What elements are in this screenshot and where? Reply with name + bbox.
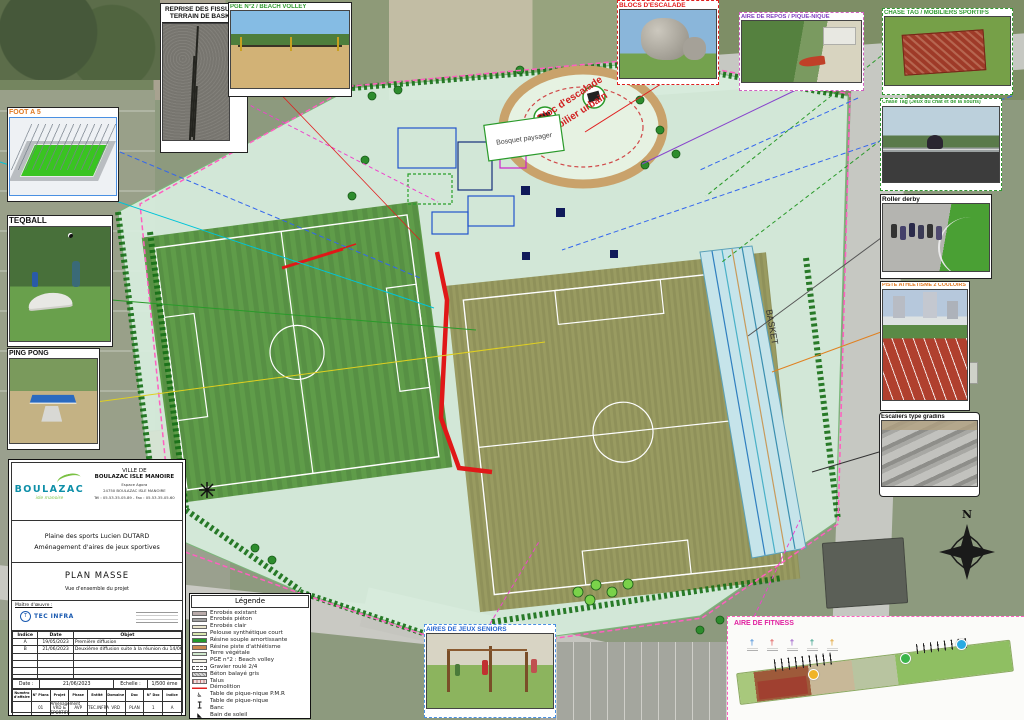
figure-icon: † [790,639,794,647]
legend-swatch-swatch [192,638,207,643]
inset-blocs-escalade: BLOCS D'ESCALADE [617,0,719,85]
logo-text: BOULAZAC [15,484,85,495]
inset-chase-tag-aerial: CHASE TAG / MOBILIERS SPORTIFS [882,8,1013,95]
ball-graphic [68,233,73,238]
revision-row-empty [13,667,182,674]
meta-header: Phase [69,690,88,702]
wood-post-graphic [447,650,450,692]
inset-roller-derby: Roller derby [880,194,992,279]
city-address: Tél : 05.53.35.05.89 - Fax : 05.53.35.05… [87,495,182,500]
scale-label: Echelle : [113,680,147,689]
athletics-track-band [700,246,806,558]
fitness-pictograms: † † † † † [746,639,838,651]
inset-aire-fitness: AIRE DE FITNESS † † † † † [727,616,1024,720]
doc-subtitle: Vue d'ensemble du projet [12,586,182,592]
table-top-graphic [29,395,75,404]
meta-header: Entité [88,690,107,702]
tower-graphic [923,292,937,318]
photo-beach-volley [230,10,350,89]
doc-title: PLAN MASSE [12,571,182,581]
scale-value: 1/500 ème [147,680,181,689]
person-graphic [32,272,38,287]
revision-row-empty [13,660,182,667]
inset-piste-athletisme: PISTE ATHLETISME 2 COULOIRS [880,281,970,411]
photo-chase-tag-aerial [884,16,1011,86]
document-title: PLAN MASSE Vue d'ensemble du projet [12,563,182,601]
table-leg-graphic [41,406,62,422]
wood-bar-graphic [447,649,527,651]
legend-swatch-swatch [192,618,207,623]
pictogram: † [826,639,838,651]
legend-label: PGE n°2 : Beach volley [210,658,274,664]
photo-chase-tag [882,106,1000,183]
legend-swatch-icon: ┳ [192,700,207,705]
legend-swatch-swatch [192,632,207,637]
inset-foot-a5: FOOT A 5 [7,107,119,202]
logo-subtext: isle manoire [12,496,87,501]
aerial-forest [0,0,160,80]
plan-masse-sheet: Bloc d'escalade Mobilier urbain Bosquet … [0,0,1024,720]
city-name: BOULAZAC ISLE MANOIRE [87,474,182,480]
aerial-sports-hall [822,537,908,609]
pictogram-caption [747,648,758,651]
meta-header: Indice [163,690,182,702]
zone-badge-green [900,653,911,664]
legend-swatch-line [192,686,207,691]
photo-teqball [9,226,111,342]
legend-swatch-swatch [192,645,207,650]
project-line: Aménagement d'aires de jeux sportives [12,544,182,551]
teqball-table-graphic [27,290,72,308]
revision-row: B21/06/2023Deuxième diffusion suite à la… [13,646,182,653]
meta-grid: Numéro d'affaireN° PlansProjetPhaseEntit… [12,689,182,715]
zone-badge-yellow [808,669,819,680]
legend-label: Démolition [210,685,240,691]
pictogram-caption [807,648,818,651]
inset-chase-tag-photo: Chase Tag (Jeux du chat et de la souris) [880,98,1002,191]
rail-graphic [883,149,999,151]
post-graphic [290,37,292,51]
revision-header: Indice [13,632,38,639]
legend-swatch-swatch [192,652,207,657]
inset-teqball: TEQBALL [7,215,113,347]
project-title: Plaine des sports Lucien DUTARD Aménagem… [12,521,182,563]
meta-value: PLAN [125,702,144,716]
revision-table: IndiceDateObjetA19/05/2023Première diffu… [12,631,182,679]
inset-ping-pong: PING PONG [7,348,100,450]
pictogram: † [746,639,758,651]
inset-beach-volley: PGE N°2 / BEACH VOLLEY [228,2,352,97]
legend-swatch-swatch [192,611,207,616]
wood-post-graphic [489,646,492,692]
legend-item: Béton balayé gris [192,671,308,678]
legend-label: Table de pique-nique [210,699,268,705]
equipment-posts-graphic [774,652,835,671]
legend: Légende Enrobés existantEnrobés piétonEn… [189,593,311,719]
wood-post-graphic [525,652,528,692]
legend-label: Terre végétale [210,651,250,657]
bosquet-label: Bosquet paysager [484,115,564,161]
moe-label: Maître d'œuvre : [15,603,182,608]
inset-label: TEQBALL [9,217,111,226]
legend-item: ┻Banc [192,705,308,712]
title-block-header: BOULAZAC isle manoire VILLE DE BOULAZAC … [12,463,182,521]
legend-rows: Enrobés existantEnrobés piétonEnrobés cl… [190,609,310,719]
legend-swatch-texture [192,672,207,677]
revision-row: A19/05/2023Première diffusion [13,639,182,646]
inset-label: BLOCS D'ESCALADE [619,2,717,9]
meta-value [13,702,32,716]
city-address: Espace Agora [87,482,182,487]
city-block: VILLE DE BOULAZAC ISLE MANOIRE Espace Ag… [87,463,182,520]
legend-item: ◣Bain de soleil [192,712,308,719]
meta-header: Numéro d'affaire [13,690,32,702]
basket-annotation: BASKET [764,309,780,346]
bosquet-label-text: Bosquet paysager [496,132,554,147]
crack-graphic [191,26,199,137]
boulazac-logo: BOULAZAC isle manoire [12,463,87,520]
post-graphic [240,37,242,51]
legend-label: Gravier roulé 2/4 [210,665,257,671]
boulder-graphic [683,37,706,60]
lanes-graphic [883,338,967,400]
demolition-lines [282,244,492,472]
title-block-frame: BOULAZAC isle manoire VILLE DE BOULAZAC … [11,462,183,713]
meta-value: 01 [31,702,50,716]
legend-label: Bain de soleil [210,713,247,719]
inset-label: Roller derby [882,196,990,203]
person-graphic [455,664,460,676]
pictogram: † [786,639,798,651]
inset-label: PING PONG [9,350,98,358]
person-graphic [482,660,488,675]
moe-name: TEC INFRA [34,613,74,620]
moe-section: Maître d'œuvre : T TEC INFRA [12,601,182,631]
moe-row: T TEC INFRA [12,610,182,623]
pictogram: † [766,639,778,651]
revision-table-section: IndiceDateObjetA19/05/2023Première diffu… [12,631,182,679]
post-graphic [337,37,339,51]
meta-value: VRD [106,702,125,716]
legend-label: Béton balayé gris [210,672,259,678]
meta-header: Projet [50,690,69,702]
track-curve-graphic [938,217,990,272]
city-address: 24750 BOULAZAC ISLE MANOIRE [87,488,182,493]
red-lounger-graphic [799,55,826,68]
revision-row-empty [13,653,182,660]
photo-picnic-area [741,20,862,83]
photo-roller-derby [882,203,990,272]
meta-value: 1 [144,702,163,716]
meta-grid-section: Date : 21/06/2023 Echelle : 1/500 ème Nu… [12,679,182,715]
photo-athletics-track [882,289,968,401]
inset-label: AIRES DE JEUX SENIORS [426,626,554,633]
skaters-graphic [891,224,897,238]
figure-icon: † [810,639,814,647]
render-foot-a5 [9,117,117,196]
grass-pitch [446,252,801,612]
tower-graphic [947,301,958,319]
inset-aire-repos: AIRE DE REPOS / PIQUE-NIQUE [739,12,864,91]
person-graphic [927,135,943,149]
inset-label: AIRE DE FITNESS [728,617,1024,628]
date-value: 21/06/2023 [40,680,114,689]
legend-swatch-icon: ♿ [192,693,207,698]
inset-escaliers: Escaliers type gradins [879,412,980,497]
figure-icon: † [830,639,834,647]
date-label: Date : [13,680,40,689]
legend-label: Enrobés clair [210,624,246,630]
project-line: Plaine des sports Lucien DUTARD [12,533,182,540]
red-court-graphic [901,30,986,77]
compass-rose: N [939,508,995,580]
photo-climbing-boulder [619,9,717,79]
legend-label: Banc [210,706,224,712]
legend-label: Table de pique-nique P.M.R [210,692,285,698]
building-graphic [823,27,856,45]
moe-logo-icon: T [20,611,31,622]
meta-header: N° Plans [31,690,50,702]
photo-seniors-playground [426,633,554,709]
legend-item: Résine souple amortissante [192,637,308,644]
pictogram: † [806,639,818,651]
date-scale-row: Date : 21/06/2023 Echelle : 1/500 ème [12,679,182,689]
boulder-graphic [641,18,689,60]
meta-header: Domaine [106,690,125,702]
meta-value: TEC.INFRA [88,702,107,716]
meta-value: Aménagement VRD & SPORTIFS [50,702,69,716]
pictogram-caption [827,648,838,651]
moe-address-placeholder [136,610,178,623]
pictogram-caption [787,648,798,651]
compass-n-label: N [962,508,972,521]
legend-swatch-dashed [192,666,207,671]
person-graphic [72,261,80,287]
photo-concrete-steps [881,420,978,487]
meta-value: A [163,702,182,716]
inset-jeux-seniors: AIRES DE JEUX SENIORS [424,624,556,718]
legend-swatch-swatch [192,625,207,630]
photo-cracked-asphalt [162,23,230,141]
meta-header: N° Doc [144,690,163,702]
revision-header: Objet [73,632,181,639]
meta-header: Doc [125,690,144,702]
revision-header: Date [38,632,73,639]
legend-label: Pelouse synthétique court [210,631,283,637]
figure-icon: † [750,639,754,647]
legend-swatch-icon: ◣ [192,713,207,718]
trees [251,66,724,634]
photo-ping-pong [9,358,98,444]
legend-swatch-talus [192,679,207,684]
legend-swatch-icon: ┻ [192,706,207,711]
legend-label: Résine souple amortissante [210,638,287,644]
legend-swatch-swatch [192,659,207,664]
pictogram-caption [767,648,778,651]
court-cluster [398,128,618,260]
inset-label: FOOT A 5 [9,109,117,117]
figure-icon: † [770,639,774,647]
zone-badge-blue [956,639,967,650]
soft-surface-graphic [757,676,808,700]
person-graphic [531,659,537,673]
legend-title: Légende [191,595,309,608]
tower-graphic [893,296,905,318]
title-block: BOULAZAC isle manoire VILLE DE BOULAZAC … [8,459,186,716]
